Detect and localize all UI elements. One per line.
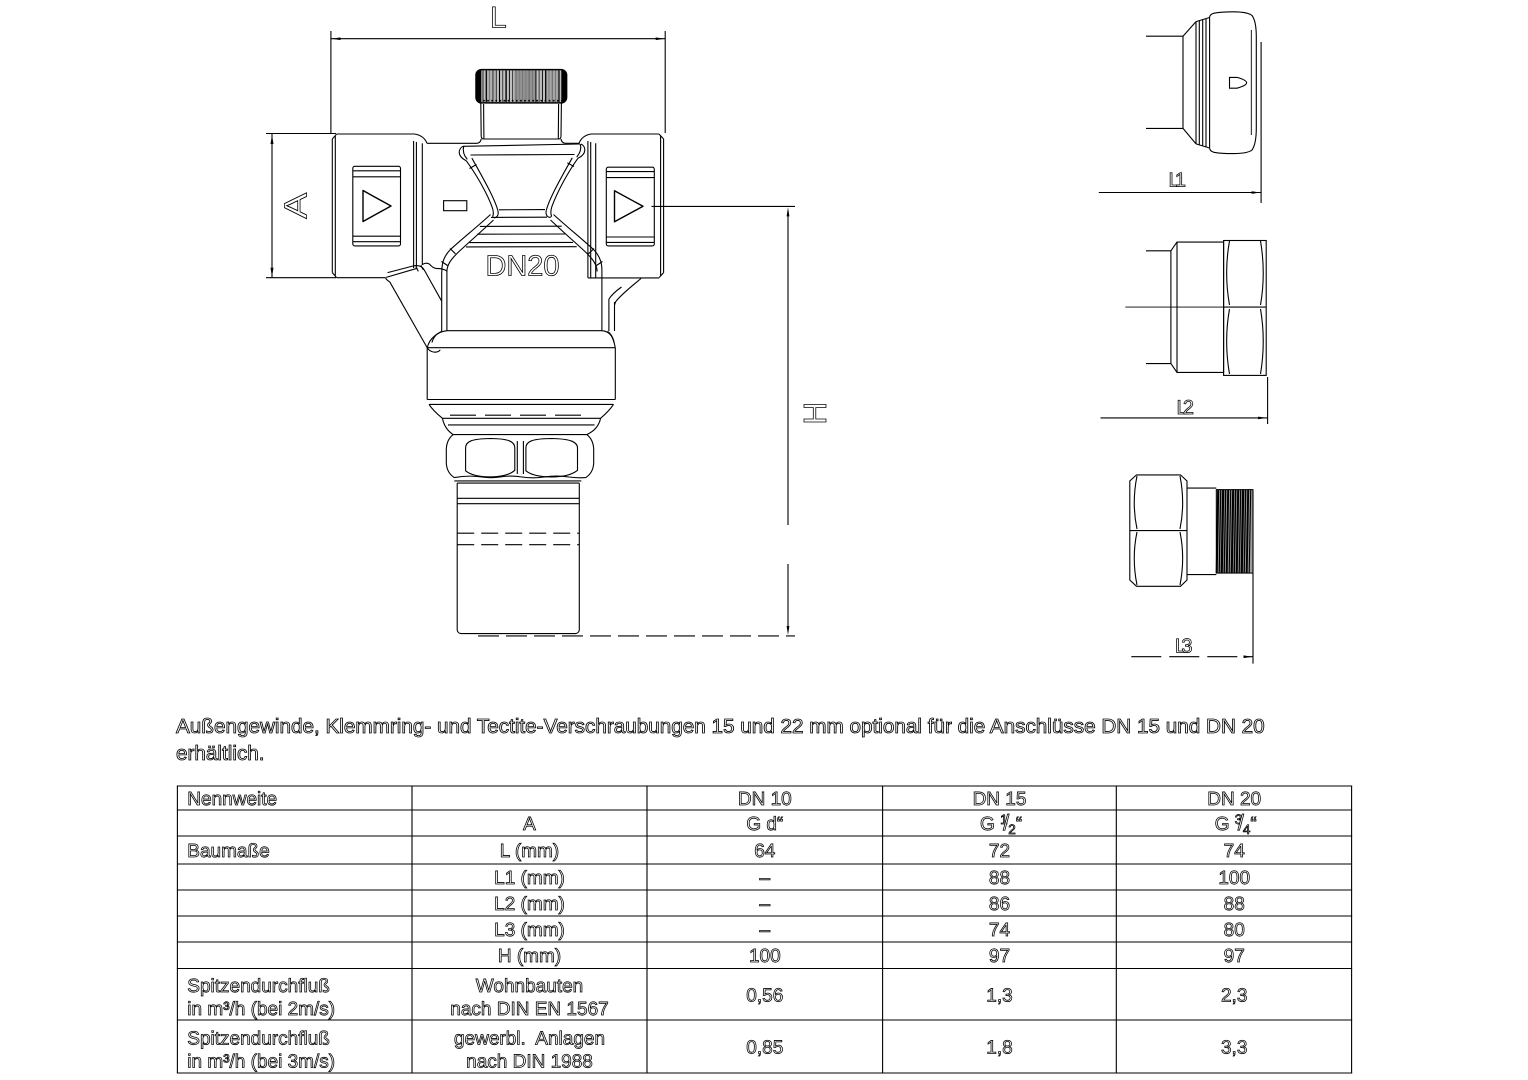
svg-text:A: A [523, 814, 536, 835]
svg-text:G d“: G d“ [746, 814, 783, 835]
svg-text:1,8: 1,8 [986, 1038, 1012, 1059]
svg-text:88: 88 [1224, 894, 1245, 915]
svg-text:L3 (mm): L3 (mm) [494, 920, 565, 941]
svg-text:L3: L3 [1175, 636, 1193, 658]
svg-text:DN 10: DN 10 [738, 789, 792, 810]
svg-text:in m³/h (bei 3m/s): in m³/h (bei 3m/s) [187, 1052, 335, 1073]
svg-text:86: 86 [989, 894, 1010, 915]
svg-text:64: 64 [754, 841, 776, 862]
svg-text:97: 97 [989, 946, 1010, 967]
svg-text:–: – [760, 894, 771, 915]
svg-text:L2 (mm): L2 (mm) [494, 894, 565, 915]
svg-text:DN20: DN20 [486, 250, 560, 282]
svg-text:H (mm): H (mm) [498, 946, 561, 967]
svg-text:100: 100 [749, 946, 781, 967]
svg-text:Spitzendurchfluß: Spitzendurchfluß [187, 1029, 330, 1050]
svg-text:72: 72 [989, 841, 1010, 862]
svg-text:G 1/2“: G 1/2“ [980, 810, 1022, 837]
svg-text:Nennweite: Nennweite [187, 789, 277, 810]
svg-text:nach DIN EN 1567: nach DIN EN 1567 [450, 999, 608, 1020]
svg-text:2,3: 2,3 [1221, 986, 1247, 1007]
svg-text:in m³/h (bei 2m/s): in m³/h (bei 2m/s) [187, 999, 335, 1020]
svg-text:80: 80 [1224, 920, 1245, 941]
svg-text:74: 74 [1224, 841, 1246, 862]
svg-text:gewerbl. Anlagen: gewerbl. Anlagen [454, 1029, 605, 1050]
svg-text:H: H [797, 402, 833, 425]
svg-text:L1 (mm): L1 (mm) [494, 868, 565, 889]
svg-text:Spitzendurchfluß: Spitzendurchfluß [187, 976, 330, 997]
svg-text:0,85: 0,85 [746, 1038, 783, 1059]
svg-text:74: 74 [989, 920, 1011, 941]
svg-text:88: 88 [989, 868, 1010, 889]
svg-text:1,3: 1,3 [986, 986, 1012, 1007]
svg-text:L1: L1 [1169, 170, 1187, 192]
svg-text:DN 15: DN 15 [973, 789, 1027, 810]
svg-text:G 3/4“: G 3/4“ [1215, 810, 1257, 837]
svg-text:3,3: 3,3 [1221, 1038, 1247, 1059]
svg-text:Baumaße: Baumaße [187, 841, 269, 862]
svg-text:A: A [278, 192, 314, 219]
svg-text:0,56: 0,56 [746, 986, 783, 1007]
svg-text:L (mm): L (mm) [500, 841, 559, 862]
svg-text:–: – [760, 868, 771, 889]
svg-text:97: 97 [1224, 946, 1245, 967]
svg-text:nach DIN 1988: nach DIN 1988 [466, 1052, 593, 1073]
svg-text:L2: L2 [1177, 397, 1195, 419]
svg-text:L: L [490, 2, 507, 35]
svg-text:–: – [760, 920, 771, 941]
svg-text:Wohnbauten: Wohnbauten [476, 976, 583, 997]
svg-text:100: 100 [1218, 868, 1250, 889]
svg-text:DN 20: DN 20 [1207, 789, 1261, 810]
